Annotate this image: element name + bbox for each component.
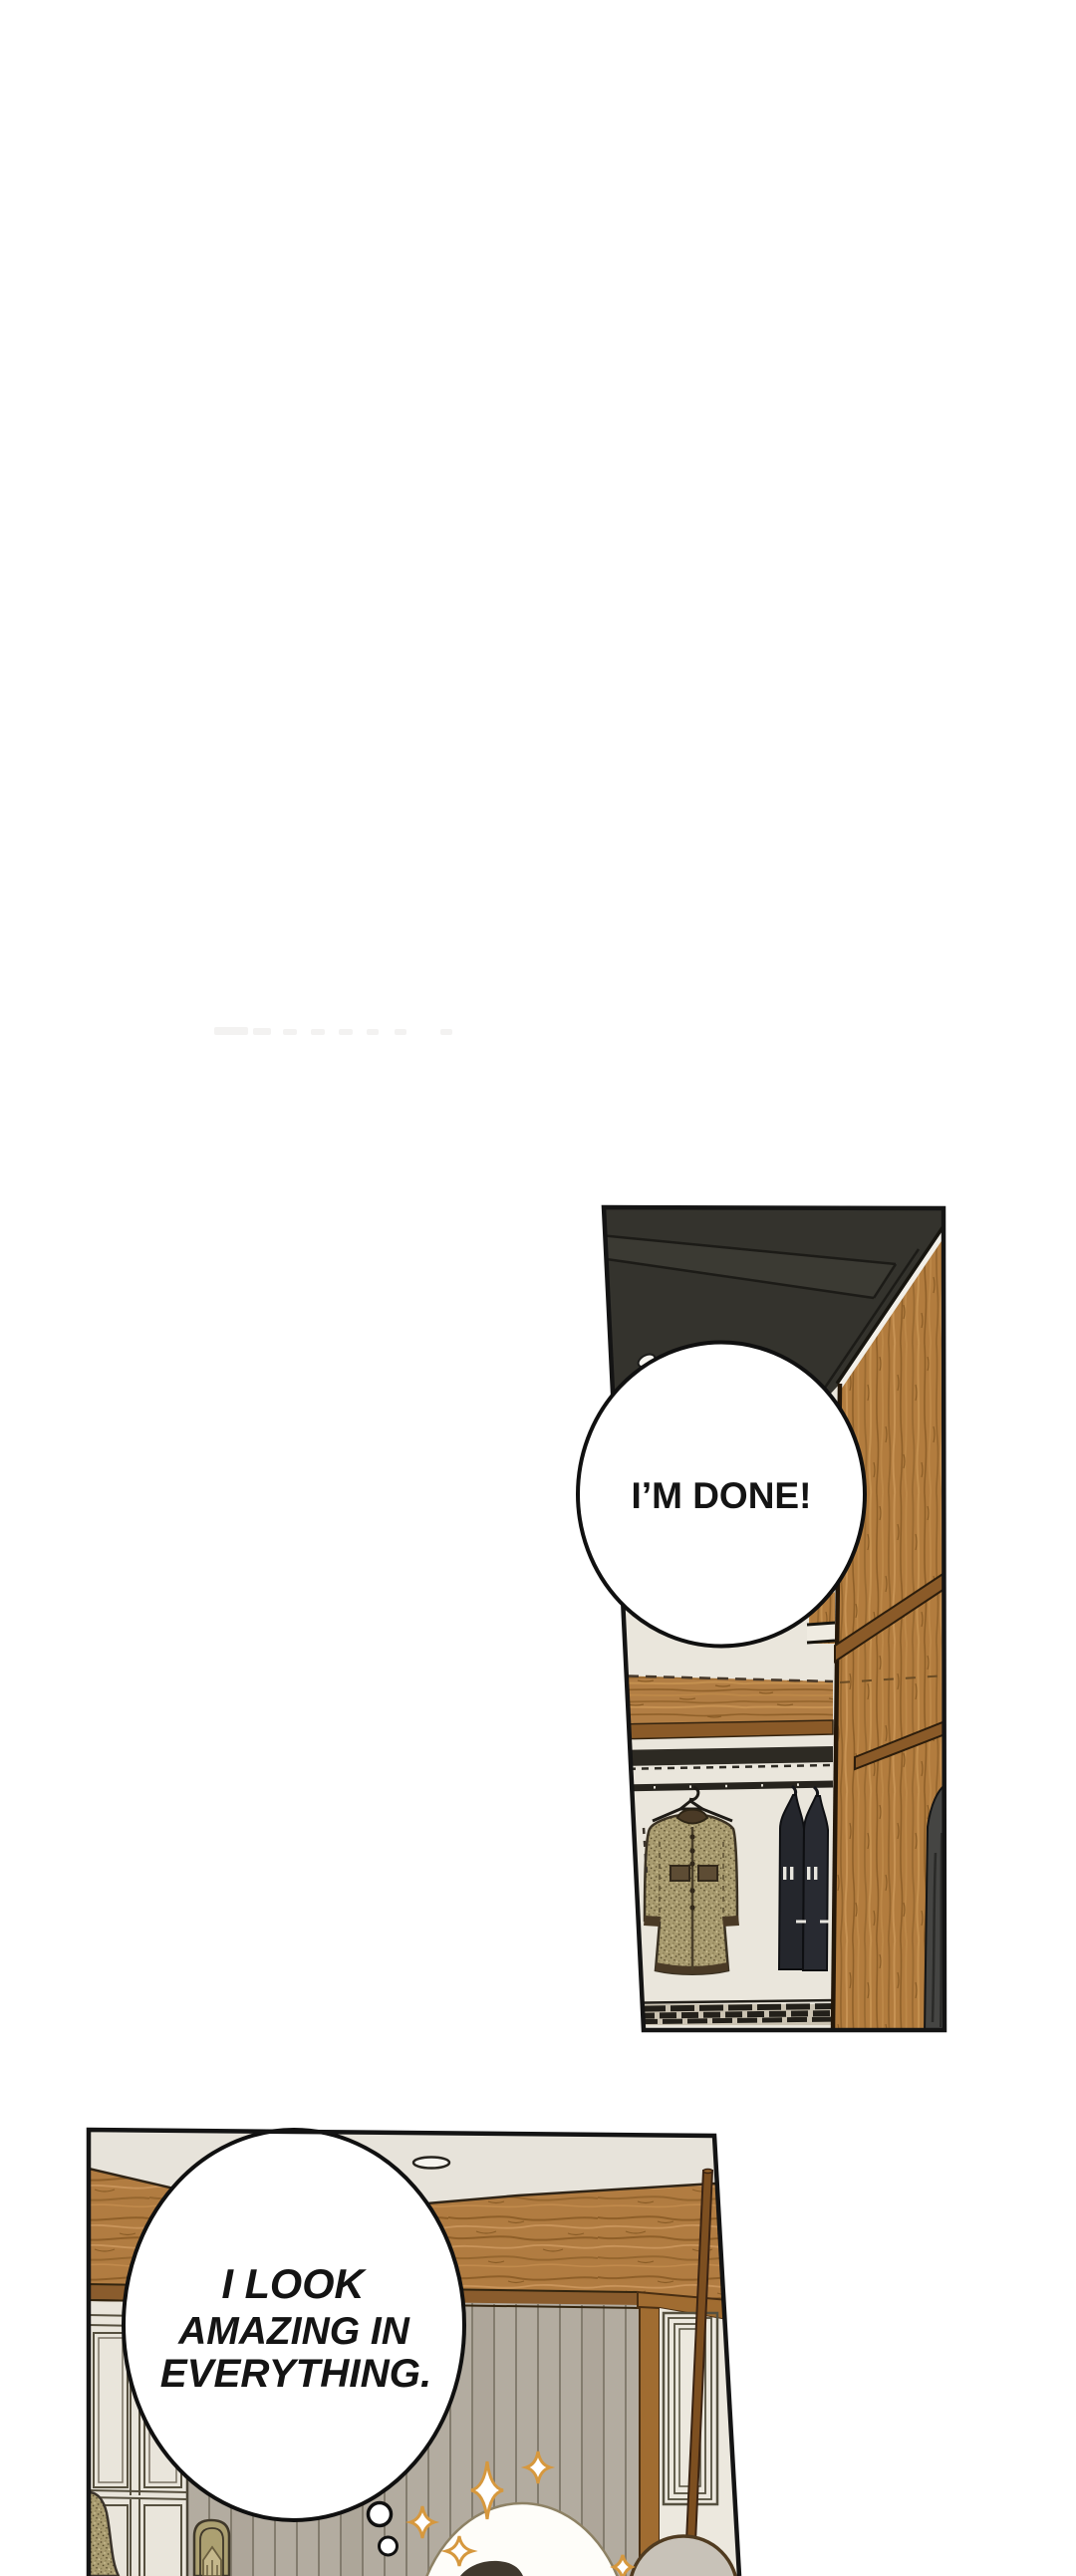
svg-text:I LOOK: I LOOK [222, 2260, 368, 2307]
svg-text:EVERYTHING.: EVERYTHING. [160, 2351, 431, 2396]
svg-text:I’M DONE!: I’M DONE! [632, 1475, 812, 1516]
svg-text:AMAZING IN: AMAZING IN [177, 2310, 410, 2353]
